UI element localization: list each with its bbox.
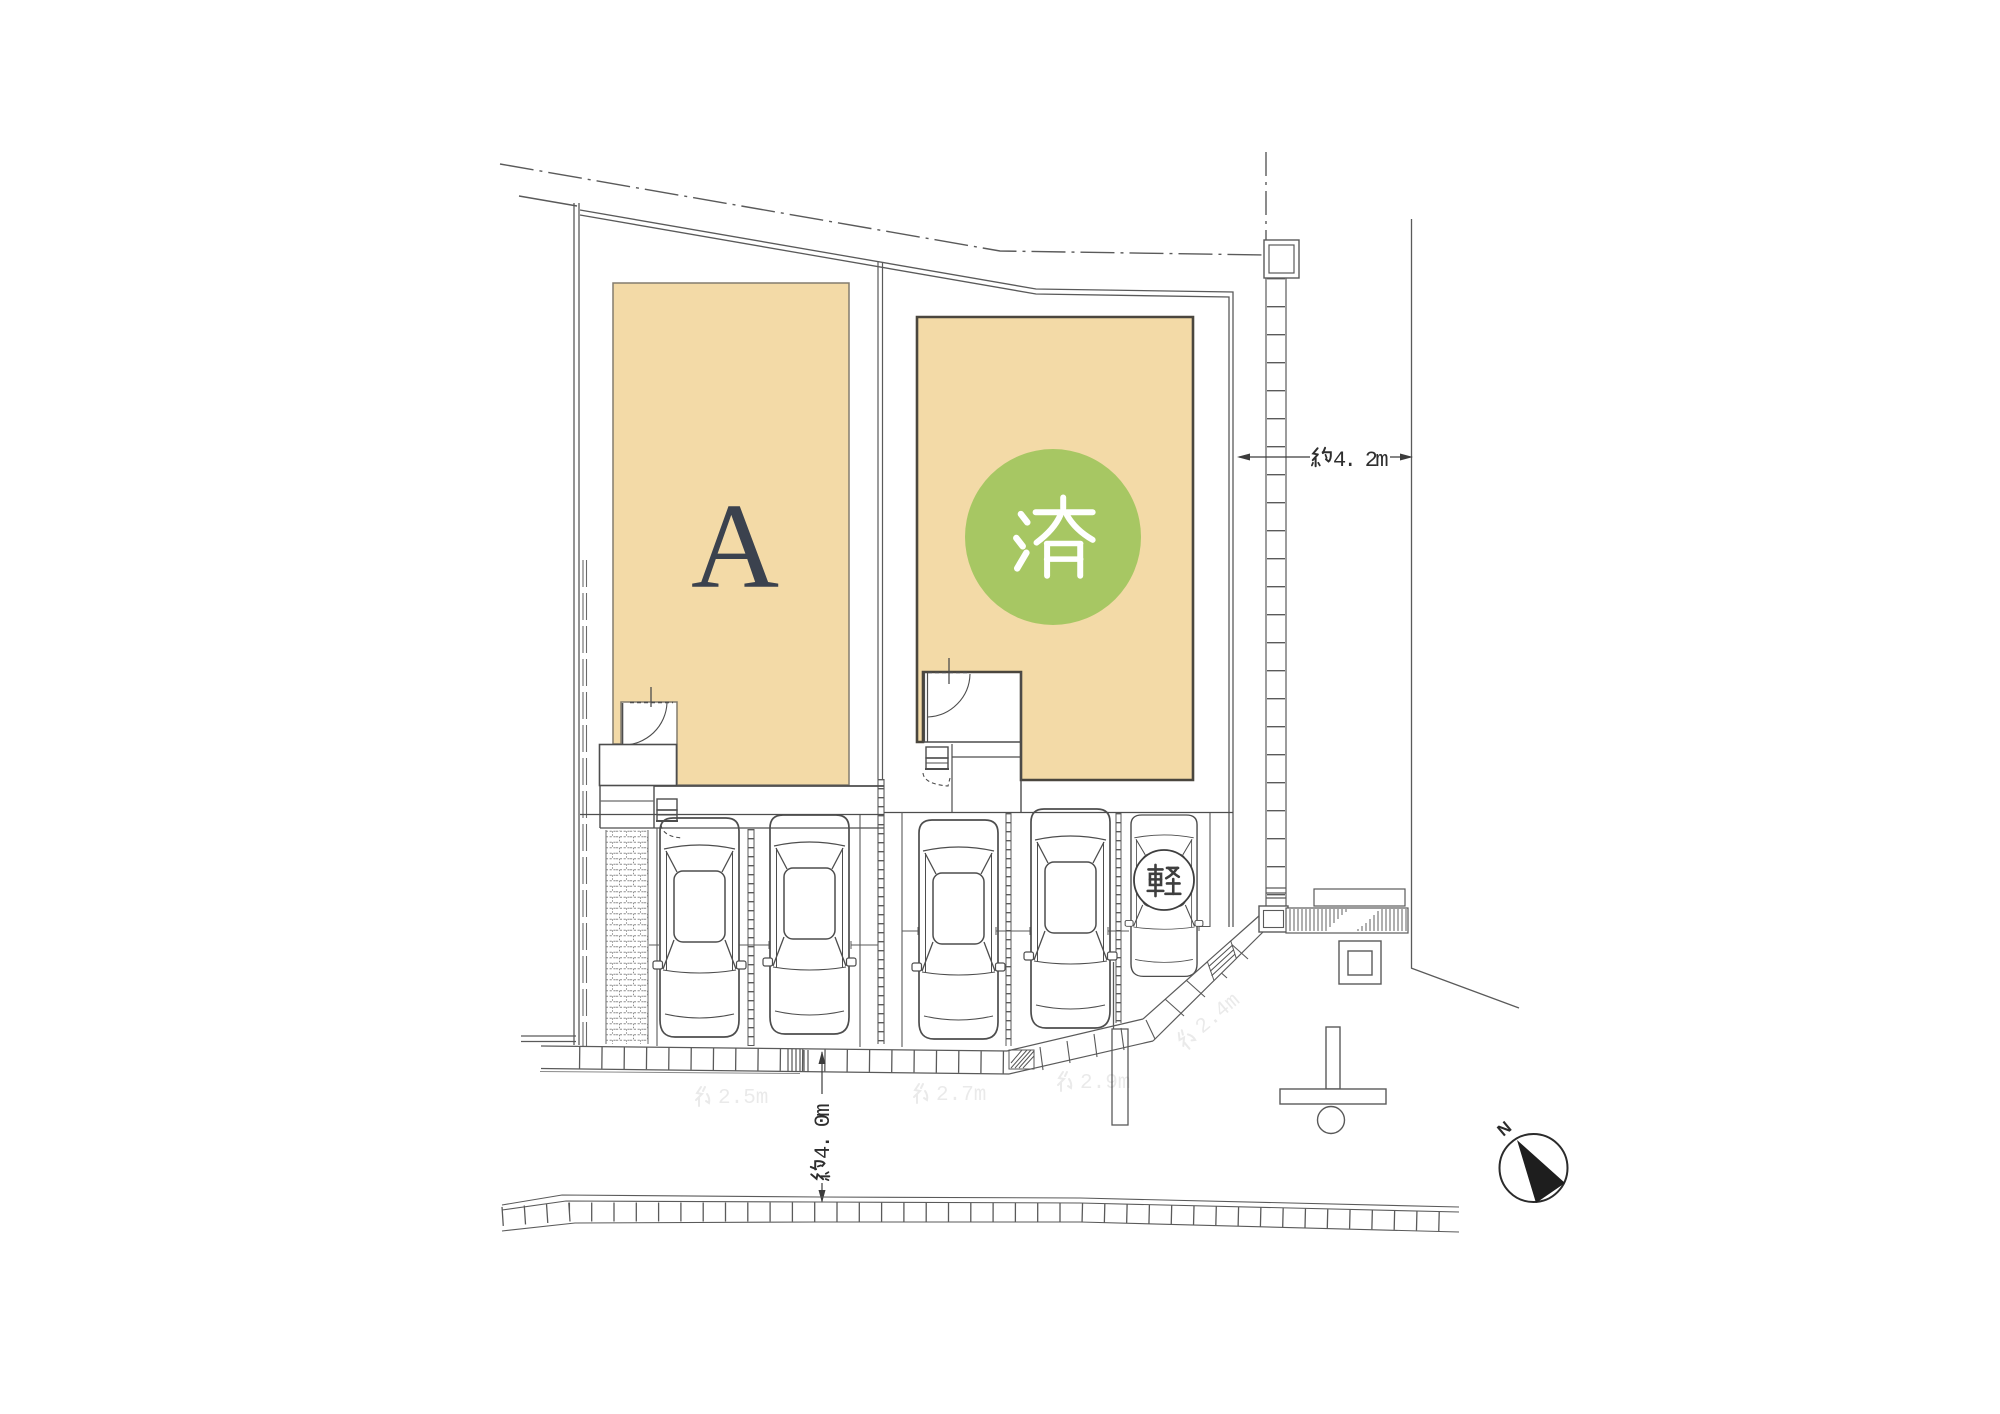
svg-text:4. 2m: 4. 2m bbox=[1333, 448, 1388, 473]
svg-text:2.5m: 2.5m bbox=[718, 1087, 768, 1110]
svg-text:2.9m: 2.9m bbox=[1080, 1072, 1130, 1095]
svg-text:2.7m: 2.7m bbox=[936, 1084, 986, 1107]
svg-text:4. 0m: 4. 0m bbox=[811, 1104, 836, 1159]
svg-text:A: A bbox=[691, 479, 779, 614]
